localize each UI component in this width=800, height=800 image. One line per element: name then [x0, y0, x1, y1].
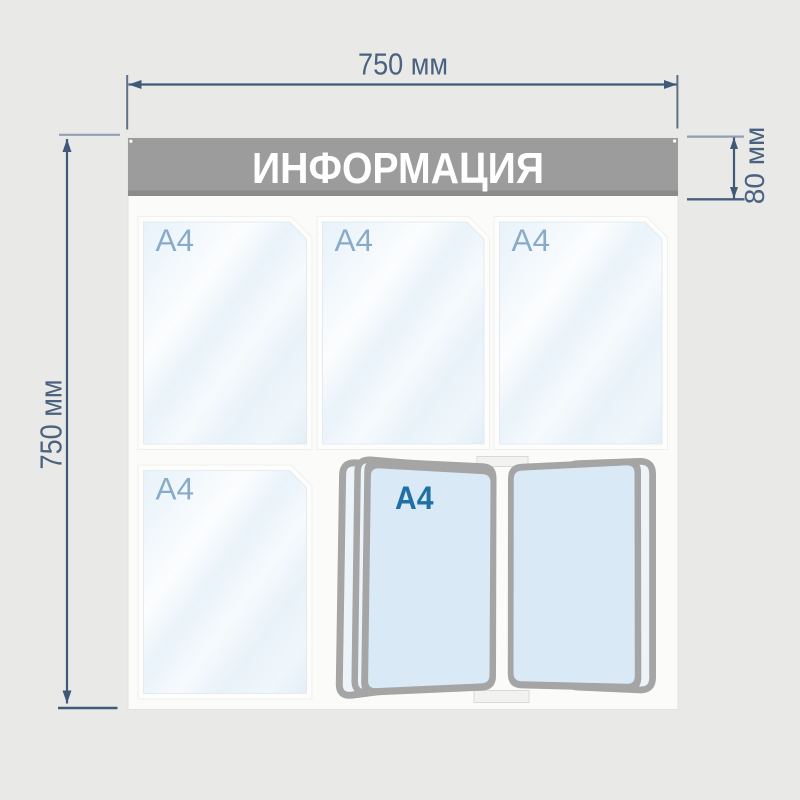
- svg-text:A4: A4: [156, 222, 195, 258]
- svg-text:ИНФОРМАЦИЯ: ИНФОРМАЦИЯ: [252, 144, 544, 193]
- svg-text:750 мм: 750 мм: [34, 380, 69, 470]
- svg-text:A4: A4: [395, 480, 434, 516]
- svg-text:A4: A4: [512, 222, 551, 258]
- svg-text:A4: A4: [335, 222, 374, 258]
- svg-text:A4: A4: [156, 471, 195, 507]
- svg-text:750 мм: 750 мм: [358, 47, 448, 82]
- svg-text:80 мм: 80 мм: [739, 127, 770, 204]
